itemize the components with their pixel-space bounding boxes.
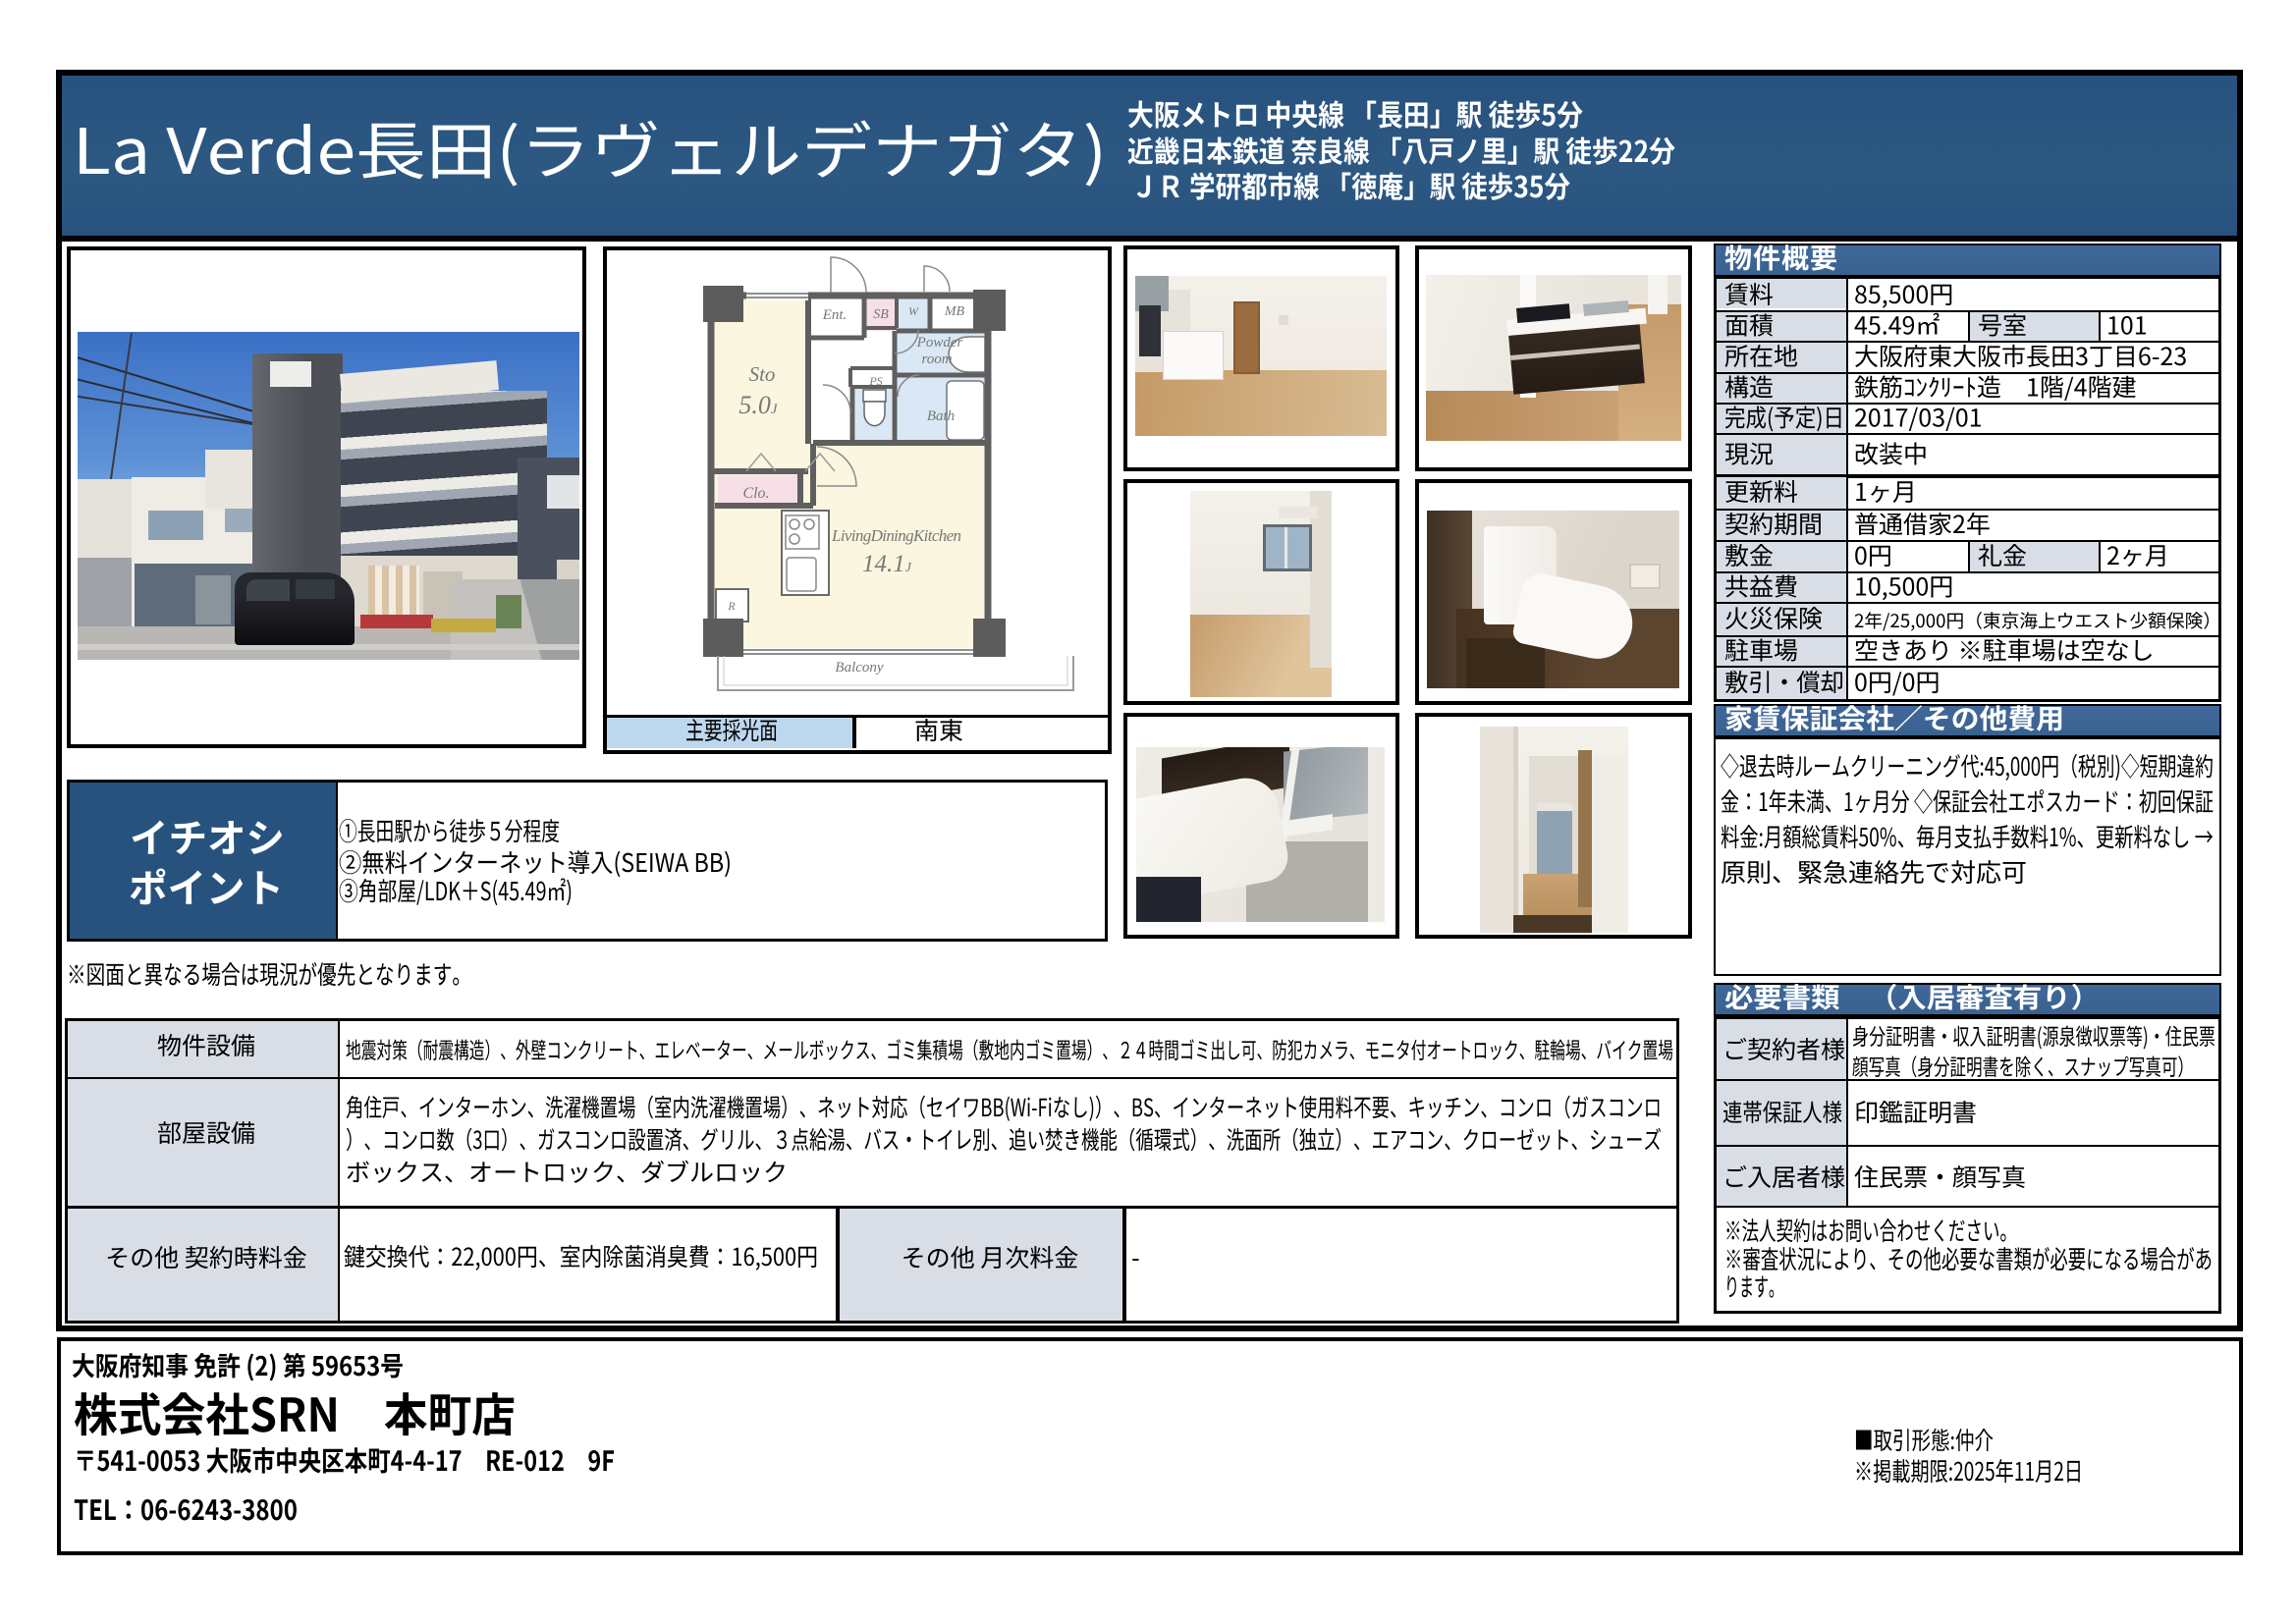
svg-text:Balcony: Balcony [835,660,883,676]
svg-text:room: room [921,352,952,367]
svg-text:14.1J: 14.1J [862,551,912,577]
svg-text:R: R [727,599,736,613]
svg-text:Bath: Bath [927,408,955,424]
svg-text:W: W [908,304,919,318]
svg-text:SB: SB [873,307,889,322]
svg-text:Ent.: Ent. [822,307,847,323]
svg-text:Clo.: Clo. [742,485,769,502]
svg-text:Powder: Powder [916,335,963,351]
svg-text:PS: PS [868,374,882,388]
svg-text:Sto: Sto [749,362,776,386]
svg-text:MB: MB [944,304,965,319]
svg-text:LivingDiningKitchen: LivingDiningKitchen [831,526,961,545]
